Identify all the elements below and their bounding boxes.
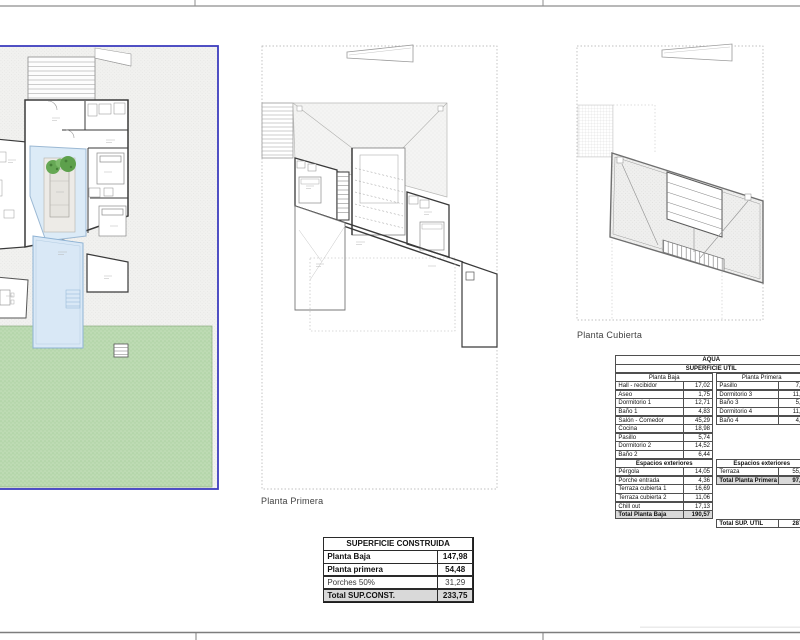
- util-table-cell: [779, 502, 800, 511]
- double-height-void: [352, 148, 405, 235]
- util-table-cell: 97,0: [778, 476, 800, 485]
- main-roof: [610, 153, 763, 283]
- staircase: [337, 172, 349, 220]
- util-table-cell: [717, 425, 779, 434]
- construida-table-cell: 233,75: [437, 589, 473, 602]
- planta-primera-plan: [262, 45, 497, 489]
- util-table-cell: [779, 425, 800, 434]
- util-table-cell: [616, 519, 713, 528]
- garden-stairs: [114, 344, 128, 357]
- util-table-cell: 190,57: [683, 510, 713, 519]
- util-table-cell: [779, 442, 800, 451]
- pergola: [262, 103, 293, 158]
- planta-cubierta-label: Planta Cubierta: [577, 330, 642, 340]
- construida-table-title: SUPERFICIE CONSTRUIDA: [323, 537, 473, 550]
- util-table-cell: [717, 494, 779, 503]
- util-table-cell: 4,9: [778, 416, 800, 425]
- util-table-cell: [717, 442, 779, 451]
- carport-outline: [662, 44, 732, 61]
- carport-outline: [347, 45, 413, 62]
- swimming-pool: [33, 236, 83, 348]
- util-table-cell: Baño 4: [716, 416, 779, 425]
- pergola-grid: [578, 105, 613, 157]
- util-table-cell: [717, 502, 779, 511]
- util-table-cell: [779, 485, 800, 494]
- construida-table-cell: Planta Baja: [323, 550, 438, 563]
- util-table-cell: [779, 494, 800, 503]
- planta-baja-plan: [0, 46, 218, 489]
- util-table-cell: [779, 433, 800, 442]
- construida-table-cell: 31,29: [437, 576, 473, 589]
- util-table-cell: Total Planta Primera: [716, 476, 779, 485]
- util-table-cell: Total Planta Baja: [615, 510, 684, 519]
- construida-table-cell: 54,48: [437, 563, 473, 576]
- planta-primera-label: Planta Primera: [261, 496, 323, 506]
- util-table-cell: 287,: [778, 519, 800, 528]
- util-table-cell: [717, 433, 779, 442]
- construida-table-cell: Porches 50%: [323, 576, 438, 589]
- construida-table-cell: Total SUP.CONST.: [323, 589, 438, 602]
- util-table-cell: Total SUP. UTIL: [716, 519, 779, 528]
- superficie-construida-table: SUPERFICIE CONSTRUIDAPlanta Baja147,98Pl…: [323, 537, 474, 603]
- superficie-util-table: AQUASUPERFICIE UTILPlanta BajaPlanta Pri…: [616, 356, 800, 528]
- garden-area: [0, 326, 212, 487]
- construida-table-cell: Planta primera: [323, 563, 438, 576]
- right-terrace: [462, 262, 497, 347]
- bedroom-4-wing: [407, 192, 449, 257]
- construida-table-cell: 147,98: [437, 550, 473, 563]
- drawing-sheet: { "sheet": { "type": "architectural draw…: [0, 0, 800, 640]
- util-table-cell: [717, 485, 779, 494]
- planta-cubierta-plan: [577, 44, 763, 320]
- left-cut-rooms: [0, 138, 28, 318]
